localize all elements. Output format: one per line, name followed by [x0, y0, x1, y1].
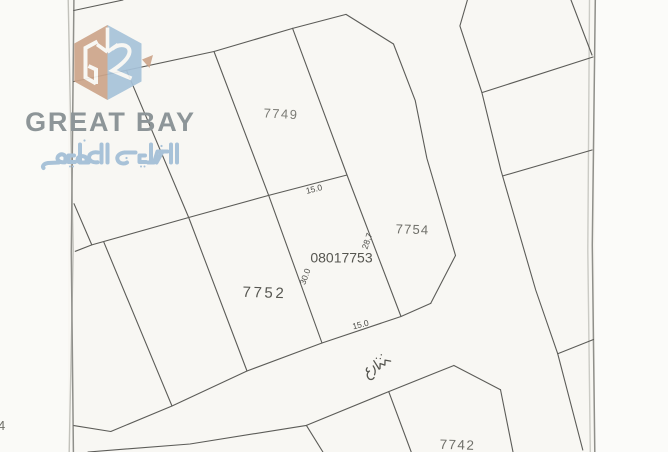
svg-text:7752: 7752: [242, 284, 286, 303]
svg-text:08017753: 08017753: [310, 249, 373, 265]
svg-text:7754: 7754: [395, 221, 429, 237]
svg-text:7742: 7742: [439, 437, 475, 452]
svg-text:GREAT BAY: GREAT BAY: [25, 107, 196, 137]
svg-text:4: 4: [0, 418, 5, 433]
svg-text:7749: 7749: [263, 105, 299, 122]
